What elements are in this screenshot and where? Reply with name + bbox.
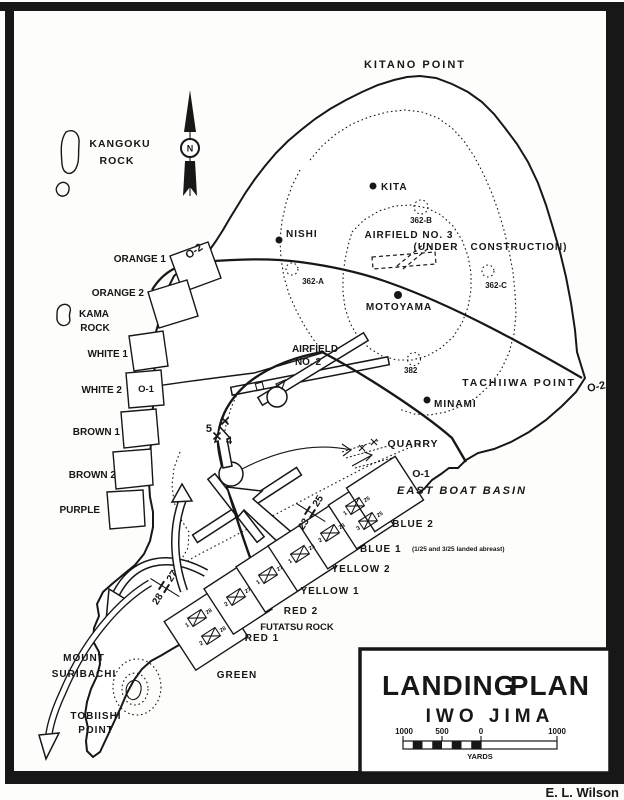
label-mount: MOUNT — [63, 653, 105, 664]
label-futatsu-rock: FUTATSU ROCK — [260, 622, 334, 633]
label-kitano-point: KITANO POINT — [364, 59, 466, 71]
label-airfield2: AIRFIELD — [292, 344, 338, 355]
label-kita: KITA — [381, 182, 408, 193]
beach-label-white2: WHITE 2 — [81, 385, 122, 396]
phase-label-o1-east: O-1 — [412, 468, 430, 480]
label-minami: MINAMI — [434, 399, 477, 410]
beach-label-yellow1: YELLOW 1 — [300, 586, 359, 597]
beach-label-brown2: BROWN 2 — [69, 470, 117, 481]
title-block: LANDING PLAN IWO JIMA 1000 500 0 1000 YA… — [360, 649, 610, 773]
label-airfield2-no2: NO. 2 — [295, 357, 322, 368]
title-word-landing: LANDING — [382, 670, 517, 701]
beach-label-brown1: BROWN 1 — [73, 427, 121, 438]
label-airfield3: AIRFIELD NO. 3 — [364, 230, 453, 241]
beach-label-green: GREEN — [217, 670, 258, 681]
title-word-plan: PLAN — [510, 670, 590, 701]
division-label-4: 4 — [226, 435, 233, 447]
label-tobiishi-point: POINT — [78, 725, 114, 736]
motoyama-dot — [394, 291, 402, 299]
label-nishi: NISHI — [286, 229, 318, 240]
label-hill-382: 382 — [404, 366, 418, 375]
beach-label-red1: RED 1 — [245, 633, 279, 644]
label-hill-362a: 362-A — [302, 277, 324, 286]
scale-label-500: 500 — [435, 727, 449, 736]
label-hill-362c: 362-C — [485, 281, 507, 290]
beach-purple-box — [107, 490, 145, 529]
beach-white1-box — [129, 331, 168, 371]
label-kama: KAMA — [79, 309, 109, 320]
frame-top — [0, 2, 624, 11]
beach-label-orange2: ORANGE 2 — [92, 288, 145, 299]
beach-label-purple: PURPLE — [59, 505, 100, 516]
scale-units-label: YARDS — [467, 752, 493, 761]
scale-bar-right — [481, 741, 557, 749]
title-iwo-jima: IWO JIMA — [426, 706, 555, 727]
scale-seg-3 — [452, 741, 462, 749]
airfield-2-apron — [267, 387, 287, 407]
frame-left — [5, 2, 14, 784]
phase-label-o1-west: O-1 — [138, 384, 155, 395]
beach-label-orange1: ORANGE 1 — [114, 254, 167, 265]
beach-label-yellow2: YELLOW 2 — [331, 564, 390, 575]
beach-label-red2: RED 2 — [284, 606, 318, 617]
beach-label-blue1: BLUE 1 — [360, 544, 402, 555]
nishi-dot — [276, 237, 283, 244]
label-tachiiwa-point: TACHIIWA POINT — [462, 377, 576, 389]
beach-brown1-box — [121, 409, 159, 448]
beach-label-white1: WHITE 1 — [87, 349, 128, 360]
label-tobiishi: TOBIISHI — [70, 711, 121, 722]
scale-label-1000-right: 1000 — [548, 727, 566, 736]
scale-label-0: 0 — [479, 727, 484, 736]
label-quarry: QUARRY — [387, 438, 438, 450]
label-suribachi: SURIBACHI — [52, 669, 117, 680]
label-airfield3-under: (UNDER — [414, 242, 459, 253]
beach-brown2-box — [113, 449, 153, 489]
beach-label-blue2: BLUE 2 — [392, 519, 434, 530]
scale-seg-2 — [432, 741, 442, 749]
label-airfield3-construction: CONSTRUCTION) — [471, 242, 568, 253]
kita-dot — [370, 183, 377, 190]
scale-seg-4 — [471, 741, 481, 749]
label-kangoku: KANGOKU — [89, 138, 150, 150]
map-page: ORANGE 1 ORANGE 2 WHITE 1 WHITE 2 BROWN … — [0, 0, 624, 800]
north-arrow-n: N — [187, 144, 194, 154]
scale-label-1000-left: 1000 — [395, 727, 413, 736]
map-canvas: ORANGE 1 ORANGE 2 WHITE 1 WHITE 2 BROWN … — [0, 0, 624, 800]
minami-dot — [424, 397, 431, 404]
label-kangoku-rock: ROCK — [100, 155, 135, 167]
label-east-boat-basin: EAST BOAT BASIN — [397, 485, 527, 497]
label-motoyama: MOTOYAMA — [366, 302, 432, 313]
beach-label-blue1-note: (1/25 and 3/25 landed abreast) — [412, 546, 504, 553]
label-kama-rock: ROCK — [80, 323, 110, 334]
cartographer-signature: E. L. Wilson — [545, 785, 619, 800]
scale-seg-1 — [413, 741, 423, 749]
label-hill-362b: 362-B — [410, 216, 432, 225]
division-label-5: 5 — [206, 423, 212, 435]
